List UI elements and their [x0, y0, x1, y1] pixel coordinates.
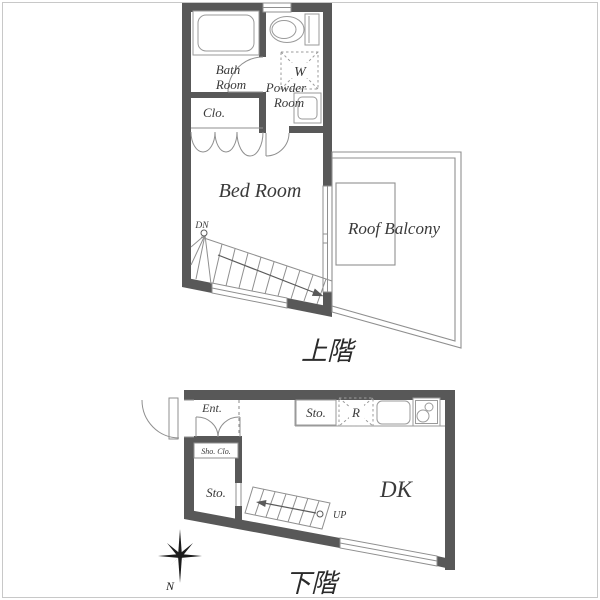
bedroom-label: Bed Room [219, 180, 302, 202]
window-handle [323, 234, 328, 243]
bath-room-label: Bath [216, 62, 241, 77]
door-leaf [169, 398, 178, 439]
balcony-inner-rail [332, 158, 455, 341]
door-swing-arc [196, 417, 218, 437]
entrance-label: Ent. [201, 401, 222, 415]
wall-segment [259, 92, 266, 133]
lower-floor-plan: Ent. Sho. Clo. Sto. Sto. R DK UP 下階 N [142, 390, 455, 598]
shoe-closet-doors [196, 417, 240, 437]
stair-fan-line [191, 235, 205, 265]
stair-step [304, 275, 313, 301]
shoe-closet-label: Sho. Clo. [201, 447, 231, 456]
refrigerator-label: R [351, 405, 360, 420]
stair-step [226, 249, 235, 286]
stair-step [213, 244, 222, 283]
stairs-up-label: UP [333, 510, 346, 521]
door-swing-arc [266, 133, 289, 156]
toilet-bowl-inner [272, 21, 296, 39]
powder-room-label: Room [273, 95, 304, 110]
closet-folding-door-arc [215, 132, 237, 152]
stair-step [265, 262, 274, 294]
stove-burner [417, 410, 429, 422]
floorplan-svg: Bath Room Clo. W Powder Room Bed Room DN… [0, 0, 600, 600]
wall-segment [445, 390, 455, 570]
wall-segment [289, 126, 332, 133]
compass-rose [158, 529, 202, 583]
lower-floor-caption: 下階 [285, 569, 341, 598]
compass-ray [178, 556, 182, 583]
door-swing-arc [218, 417, 240, 437]
upper-floor-plan: Bath Room Clo. W Powder Room Bed Room DN… [182, 3, 461, 366]
dining-kitchen-label: DK [379, 477, 414, 502]
stair-fan-line [205, 235, 211, 284]
window-line [340, 543, 437, 561]
floorplan-image: Bath Room Clo. W Powder Room Bed Room DN… [0, 0, 600, 600]
roof-balcony-outline [332, 152, 461, 348]
kitchen-storage-label: Sto. [306, 405, 326, 420]
wall-segment [235, 506, 242, 522]
roof-balcony-label: Roof Balcony [347, 219, 441, 238]
powder-room-label: Powder [265, 80, 307, 95]
stair-step [239, 253, 248, 288]
upper-floor-caption: 上階 [301, 337, 357, 366]
wall-segment [184, 390, 194, 400]
closet-folding-door-arc [191, 132, 215, 152]
balcony-outer-rail [332, 152, 461, 348]
toilet-tank [305, 14, 319, 45]
closet-label: Clo. [203, 105, 225, 120]
compass-ray [178, 529, 182, 556]
wall-segment [182, 3, 191, 287]
entrance-door [142, 398, 179, 439]
storage-label: Sto. [206, 485, 226, 500]
bath-room-label: Room [215, 77, 246, 92]
closet-folding-door-arc [237, 132, 263, 156]
stair-step [252, 257, 261, 291]
wall-segment [184, 437, 194, 519]
stairs-down-label: DN [194, 221, 209, 231]
wall-segment [182, 92, 266, 98]
bathtub [198, 15, 254, 51]
washer-label: W [294, 65, 307, 80]
wall-segment [182, 126, 191, 133]
wall-segment [323, 3, 332, 186]
wall-segment [259, 12, 266, 57]
stove-burner [425, 403, 433, 411]
kitchen-sink [377, 401, 410, 424]
wall-segment [182, 277, 212, 293]
stair-start-circle [317, 511, 323, 517]
compass-north-label: N [165, 579, 175, 593]
wall-segment [194, 436, 238, 443]
